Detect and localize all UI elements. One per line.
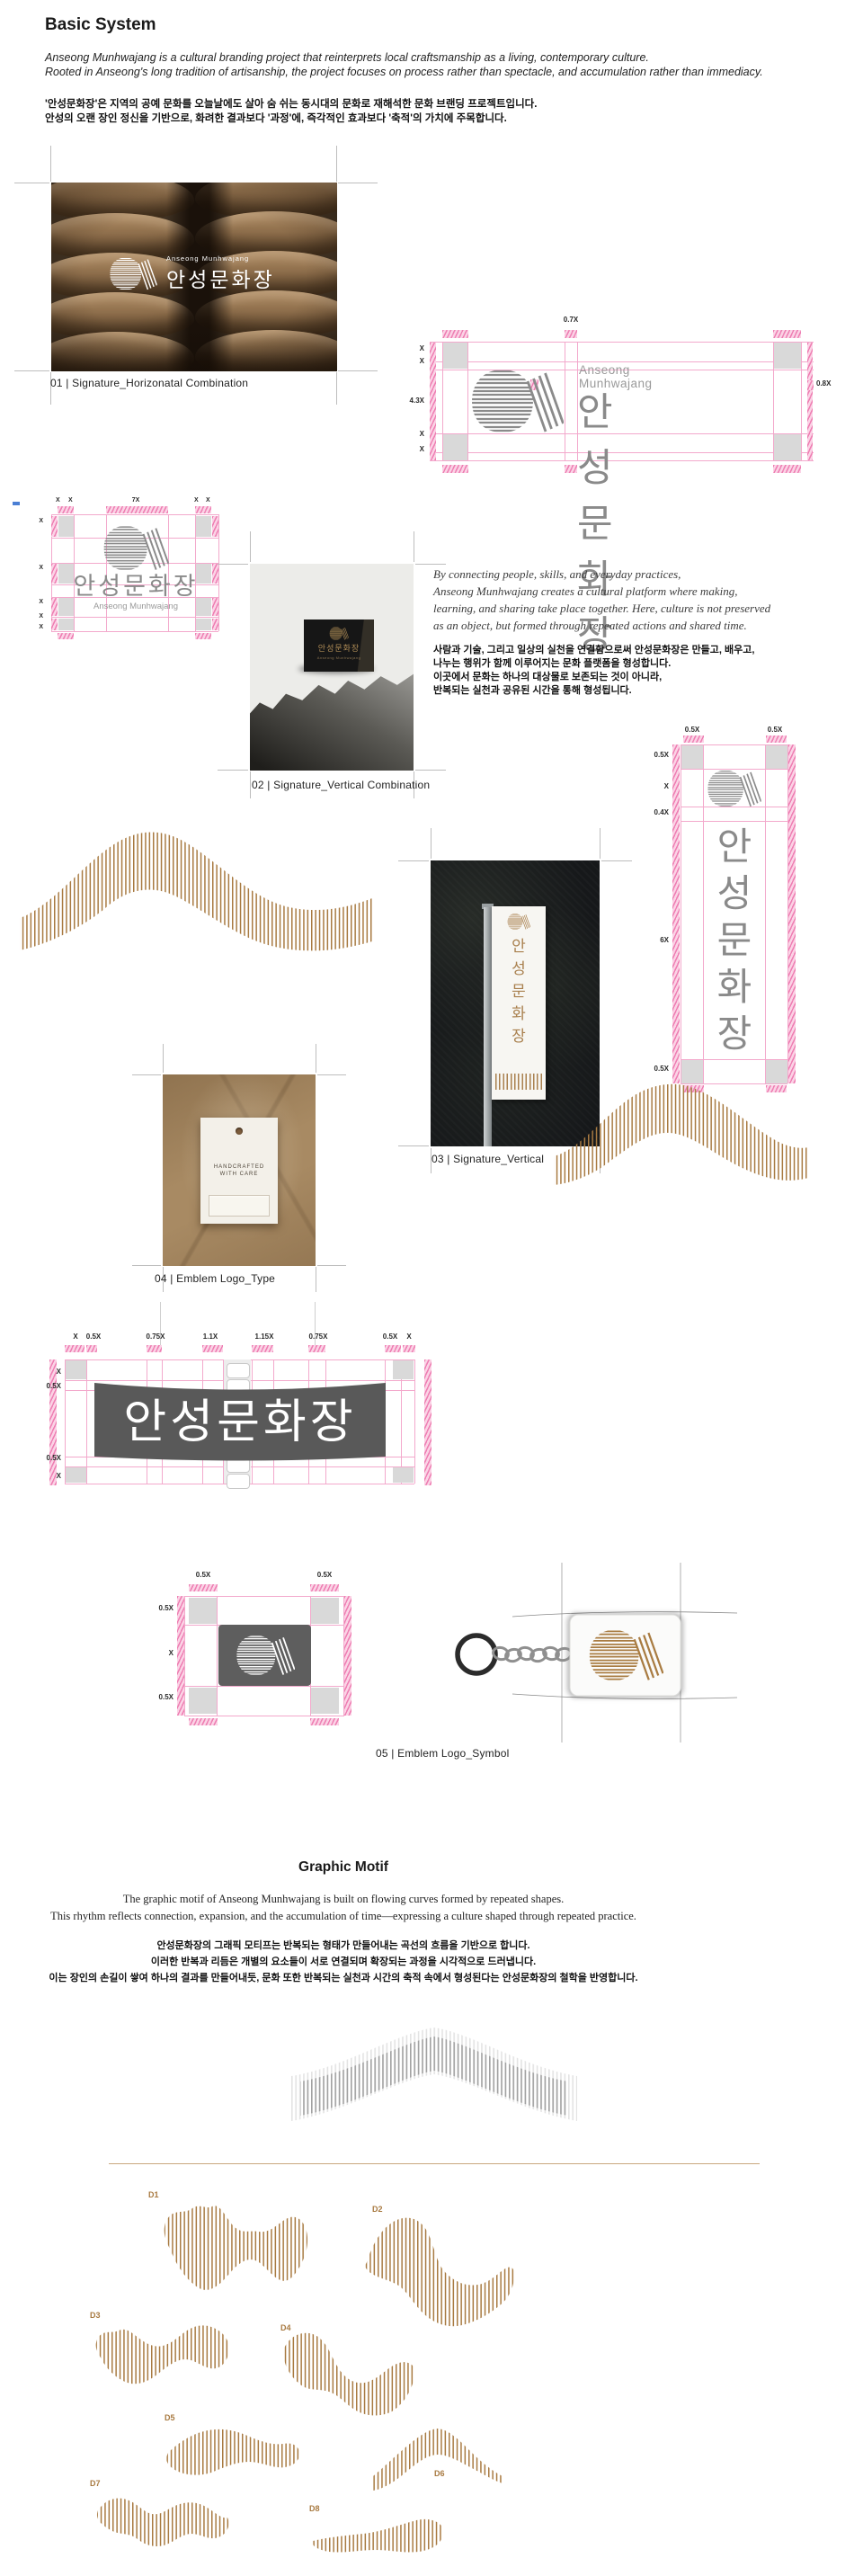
spacing-marker: [788, 744, 796, 1083]
brand-guideline-page: Basic System Anseong Munhwajang is a cul…: [0, 0, 863, 2576]
guide-line: [51, 631, 218, 632]
variant-label-d5: D5: [165, 2414, 175, 2422]
measure-label: X: [34, 624, 43, 630]
crop-mark: [218, 564, 248, 565]
guide-line: [343, 1596, 344, 1716]
wave-motif-right: [548, 1066, 814, 1199]
measure-label: X: [34, 518, 43, 524]
wordmark-char: 문: [703, 917, 766, 964]
spacing-marker: [683, 735, 704, 743]
crop-mark: [316, 1267, 316, 1292]
spacing-marker: [310, 1718, 339, 1725]
crop-mark: [415, 564, 446, 565]
guide-line: [414, 1359, 415, 1484]
spacing-marker: [195, 506, 211, 513]
spacing-marker: [344, 1596, 351, 1716]
crop-mark: [250, 771, 251, 798]
section-divider: [109, 2163, 760, 2164]
guide-line: [51, 617, 218, 618]
banner-pole: [484, 907, 492, 1146]
caption-02: 02 | Signature_Vertical Combination: [252, 779, 430, 791]
spacing-marker: [49, 1359, 57, 1485]
motif-desc-ko-line3: 이는 장인의 손길이 쌓여 하나의 결과를 만들어내듯, 문화 또한 반복되는 …: [0, 1970, 687, 1984]
chain-link: [227, 1474, 250, 1489]
guide-line: [801, 342, 802, 460]
guide-line: [184, 1596, 344, 1597]
spacing-marker: [58, 633, 74, 639]
black-gift-box: 안성문화장 Anseong Munhwajang: [304, 619, 374, 672]
spacing-marker: [430, 343, 436, 460]
variant-label-d3: D3: [90, 2312, 101, 2320]
variant-label-d1: D1: [148, 2191, 159, 2199]
intro-en-line1: Anseong Munhwajang is a cultural brandin…: [45, 51, 649, 64]
guide-line: [184, 1596, 185, 1716]
spacing-marker: [442, 330, 468, 338]
vertical-wordmark: 안 성 문 화 장: [703, 824, 766, 1057]
clearspace-unit: [311, 1598, 339, 1624]
crop-mark: [316, 1044, 316, 1073]
clearspace-unit: [196, 516, 211, 537]
hang-tag: HANDCRAFTED WITH CARE: [200, 1118, 278, 1224]
measure-label: 0.75X: [305, 1333, 332, 1341]
motif-desc-en-line1: The graphic motif of Anseong Munhwajang …: [0, 1893, 687, 1906]
motif-desc-ko-line1: 안성문화장의 그래픽 모티프는 반복되는 형태가 만들어내는 곡선의 흐름을 기…: [0, 1938, 687, 1952]
measure-label: X: [401, 431, 424, 438]
measure-label: 0.5X: [34, 1383, 61, 1390]
caption-04: 04 | Emblem Logo_Type: [155, 1272, 275, 1285]
spacing-marker: [385, 1345, 401, 1352]
spacing-marker: [51, 619, 58, 630]
spacing-marker: [565, 465, 577, 473]
measure-label: 0.5X: [147, 1605, 173, 1612]
variant-label-d7: D7: [90, 2480, 101, 2488]
clearspace-unit: [196, 619, 211, 630]
motif-variant-d6: [369, 2426, 506, 2496]
spacing-marker: [403, 1345, 415, 1352]
crop-mark: [317, 1265, 346, 1266]
banner-fringe: [495, 1074, 542, 1090]
measure-label: 4.3X: [401, 397, 424, 405]
crop-mark: [415, 770, 446, 771]
platform-en-line: as an object, but formed through repeate…: [433, 619, 747, 633]
measure-label: 1.1X: [197, 1333, 224, 1341]
crop-mark: [163, 1044, 164, 1073]
chain-link: [227, 1363, 250, 1378]
crop-mark: [398, 860, 429, 861]
measure-label: X: [67, 1333, 85, 1341]
motif-variant-d2: [358, 2212, 518, 2334]
clearspace-unit: [189, 1598, 217, 1624]
spacing-marker: [672, 744, 680, 1083]
brand-emblem-icon: [470, 369, 564, 433]
guide-line: [430, 452, 814, 453]
wordmark-char: 장: [703, 1011, 766, 1057]
measure-label: 0.5X: [680, 726, 705, 734]
guide-line: [217, 1596, 218, 1716]
measure-label: 0.5X: [83, 1333, 104, 1341]
spacing-marker: [177, 1596, 184, 1716]
guide-line: [565, 342, 565, 460]
brand-emblem-icon: [109, 257, 157, 290]
clearspace-unit: [58, 516, 74, 537]
spacing-marker: [766, 735, 787, 743]
signature-horizontal-white: Anseong Munhwajang 안성문화장: [109, 254, 275, 293]
spacing-marker: [147, 1345, 162, 1352]
clearspace-unit: [774, 343, 801, 369]
motif-variant-d7: [93, 2489, 233, 2552]
spacing-marker: [189, 1584, 218, 1591]
photo-pottery-stack: Anseong Munhwajang 안성문화장: [51, 183, 337, 371]
crop-mark: [250, 531, 251, 562]
clearspace-unit: [189, 1688, 217, 1714]
gray-mountain-motif: [291, 2020, 577, 2121]
spacing-marker: [51, 598, 58, 616]
guide-line: [51, 514, 218, 515]
brand-name-ko: 안성문화장: [67, 566, 204, 602]
measure-label: 0.5X: [642, 752, 669, 759]
crop-mark: [14, 183, 49, 183]
caption-03: 03 | Signature_Vertical: [431, 1153, 544, 1165]
banner-char: 장: [492, 1025, 546, 1047]
spacing-marker: [51, 516, 58, 537]
banner-char: 화: [492, 1003, 546, 1025]
tag-hole: [236, 1128, 243, 1135]
guide-line: [787, 744, 788, 1083]
measure-label: X: [34, 1368, 61, 1376]
page-title: Basic System: [45, 15, 156, 35]
registration-mark: [13, 502, 20, 505]
spacing-marker: [442, 465, 468, 473]
measure-label: 0.4X: [642, 809, 669, 816]
crop-mark: [132, 1074, 161, 1075]
platform-ko-line: 사람과 기술, 그리고 일상의 실천을 연결함으로써 안성문화장은 만들고, 배…: [433, 642, 754, 656]
guide-line: [430, 460, 814, 461]
wordmark-char: 성: [703, 870, 766, 917]
crop-mark: [336, 372, 337, 405]
spacing-marker: [212, 564, 218, 584]
measure-label: 0.5X: [762, 726, 787, 734]
tag-text-line2: WITH CARE: [200, 1172, 278, 1177]
spacing-marker: [807, 380, 814, 390]
crop-mark: [398, 1145, 429, 1146]
guide-line: [681, 821, 787, 822]
platform-ko-line: 이곳에서 문화는 하나의 대상물로 보존되는 것이 아니라,: [433, 669, 662, 683]
measure-label: 0.5X: [147, 1694, 173, 1701]
measure-label: 0.75X: [142, 1333, 169, 1341]
brand-name-en: Anseong Munhwajang: [304, 655, 374, 660]
guide-line: [430, 361, 814, 362]
crop-mark: [600, 828, 601, 859]
banner-char: 안: [492, 935, 546, 958]
measure-label: X: [401, 358, 424, 365]
clearspace-unit: [774, 434, 801, 460]
brand-name-en: Anseong Munhwajang: [67, 602, 204, 611]
measure-label: 0.5X: [34, 1455, 61, 1462]
spacing-marker: [86, 1345, 97, 1352]
measure-label: X: [194, 497, 199, 504]
spacing-marker: [310, 1584, 339, 1591]
photo-kraft-hangtag: HANDCRAFTED WITH CARE: [163, 1074, 316, 1266]
measure-label: X: [206, 497, 210, 504]
fabric-banner: 안 성 문 화 장: [492, 906, 546, 1100]
measure-label: X: [401, 345, 424, 352]
spacing-marker: [51, 564, 58, 584]
guide-line: [430, 433, 814, 434]
clearspace-unit: [311, 1688, 339, 1714]
caption-05: 05 | Emblem Logo_Symbol: [376, 1747, 509, 1760]
brand-name-ko: 안성문화장: [166, 263, 275, 293]
guide-line: [218, 514, 219, 631]
measure-label: X: [34, 565, 43, 571]
clearspace-unit: [66, 1467, 86, 1483]
motif-variant-d1: [160, 2197, 309, 2305]
crop-mark: [132, 1265, 161, 1266]
guide-line: [430, 342, 814, 343]
crop-mark: [338, 183, 378, 183]
platform-en-line: Anseong Munhwajang creates a cultural pl…: [433, 584, 737, 599]
platform-ko-line: 나누는 행위가 함께 이루어지는 문화 플랫폼을 형성합니다.: [433, 655, 671, 670]
symbol-tile: [218, 1625, 311, 1686]
measure-label: X: [68, 497, 73, 504]
banner-char: 문: [492, 980, 546, 1003]
spacing-marker: [195, 633, 211, 639]
brand-name-ko-banner: 안성문화장: [94, 1385, 386, 1460]
tag-embossed-panel: [209, 1195, 270, 1217]
motif-desc-ko-line2: 이러한 반복과 리듬은 개별의 요소들이 서로 연결되며 확장되는 과정을 시각…: [0, 1954, 687, 1968]
crop-mark: [338, 370, 378, 371]
brand-name-ko: 안성문화장: [304, 642, 374, 654]
measure-label: 1.15X: [250, 1333, 279, 1341]
motif-variant-d3: [92, 2322, 232, 2393]
brand-emblem-icon: [507, 914, 530, 930]
spacing-marker: [212, 619, 218, 630]
spacing-marker: [106, 506, 168, 513]
clearspace-unit: [66, 1360, 86, 1379]
wordmark-char: 화: [703, 964, 766, 1011]
crop-mark: [414, 531, 414, 562]
clearspace-unit: [681, 745, 703, 769]
spacing-marker: [189, 1718, 218, 1725]
photo-box-on-rock: 안성문화장 Anseong Munhwajang: [250, 564, 414, 771]
guide-line: [681, 744, 681, 1083]
measure-label: X: [34, 613, 43, 619]
spacing-marker: [212, 598, 218, 616]
crop-mark: [317, 1074, 346, 1075]
spacing-marker: [807, 343, 813, 460]
clearspace-unit: [766, 745, 787, 769]
measure-label: X: [147, 1650, 173, 1657]
guide-line: [184, 1686, 344, 1687]
spacing-marker: [308, 1345, 325, 1352]
measure-label: X: [401, 1333, 417, 1341]
spacing-marker: [212, 516, 218, 537]
intro-en-line2: Rooted in Anseong's long tradition of ar…: [45, 66, 763, 78]
wave-motif-left: [14, 812, 378, 963]
platform-ko-line: 반복되는 실천과 공유된 시간을 통해 형성됩니다.: [433, 682, 632, 697]
crop-mark: [50, 146, 51, 182]
tag-text-line1: HANDCRAFTED: [200, 1164, 278, 1170]
motif-variant-d5: [163, 2424, 303, 2482]
clearspace-unit: [58, 619, 74, 630]
measure-label: 0.5X: [378, 1333, 402, 1341]
crop-mark: [218, 770, 248, 771]
spacing-marker: [202, 1345, 223, 1352]
variant-label-d8: D8: [309, 2505, 320, 2513]
crop-mark: [431, 828, 431, 859]
measure-label: 7X: [126, 497, 146, 504]
measure-label: X: [34, 1473, 61, 1480]
crop-mark: [336, 146, 337, 182]
platform-en-line: By connecting people, skills, and everyd…: [433, 567, 681, 582]
guide-line: [86, 1359, 87, 1484]
banner-char: 성: [492, 958, 546, 980]
spacing-marker: [773, 465, 801, 473]
spacing-marker: [565, 330, 577, 338]
platform-en-line: learning, and sharing take place togethe…: [433, 602, 770, 616]
measure-label: 0.8X: [816, 380, 831, 388]
clearspace-unit: [393, 1467, 414, 1483]
measure-label: X: [56, 497, 60, 504]
motif-variant-d8: [309, 2514, 446, 2557]
measure-label: 0.5X: [190, 1572, 217, 1579]
clearspace-unit: [443, 434, 467, 460]
brand-emblem-icon: [236, 1635, 295, 1676]
motif-variant-d4: [277, 2329, 417, 2419]
spacing-marker: [424, 1359, 431, 1485]
brand-emblem-icon: [707, 770, 761, 807]
measure-label: X: [401, 446, 424, 453]
spacing-marker: [773, 330, 801, 338]
brand-emblem-icon: [329, 627, 349, 640]
measure-label: X: [34, 599, 43, 605]
guide-line: [184, 1716, 344, 1716]
measure-label: 6X: [642, 937, 669, 944]
clearspace-unit: [393, 1360, 414, 1379]
crop-mark: [601, 860, 632, 861]
spacing-marker: [58, 506, 74, 513]
brand-name-en: Anseong Munhwajang: [166, 254, 275, 263]
graphic-motif-title: Graphic Motif: [0, 1859, 687, 1876]
keychain-mockup: [449, 1557, 737, 1748]
spacing-marker: [65, 1345, 85, 1352]
motif-desc-en-line2: This rhythm reflects connection, expansi…: [0, 1910, 687, 1923]
wordmark-char: 안: [703, 824, 766, 870]
intro-ko-line1: '안성문화장'은 지역의 공예 문화를 오늘날에도 살아 숨 쉬는 동시대의 문…: [45, 96, 537, 111]
spacing-marker: [252, 1345, 273, 1352]
measure-label: 0.5X: [311, 1572, 338, 1579]
caption-01: 01 | Signature_Horizonatal Combination: [50, 377, 248, 389]
measure-label: 0.7X: [557, 316, 584, 324]
measure-label: X: [642, 783, 669, 790]
clearspace-unit: [443, 343, 467, 369]
crop-mark: [14, 370, 49, 371]
intro-ko-line2: 안성의 오랜 장인 정신을 기반으로, 화려한 결과보다 '과정'에, 즉각적인…: [45, 111, 507, 125]
brand-emblem-icon: [102, 525, 169, 571]
guide-line: [467, 342, 468, 460]
